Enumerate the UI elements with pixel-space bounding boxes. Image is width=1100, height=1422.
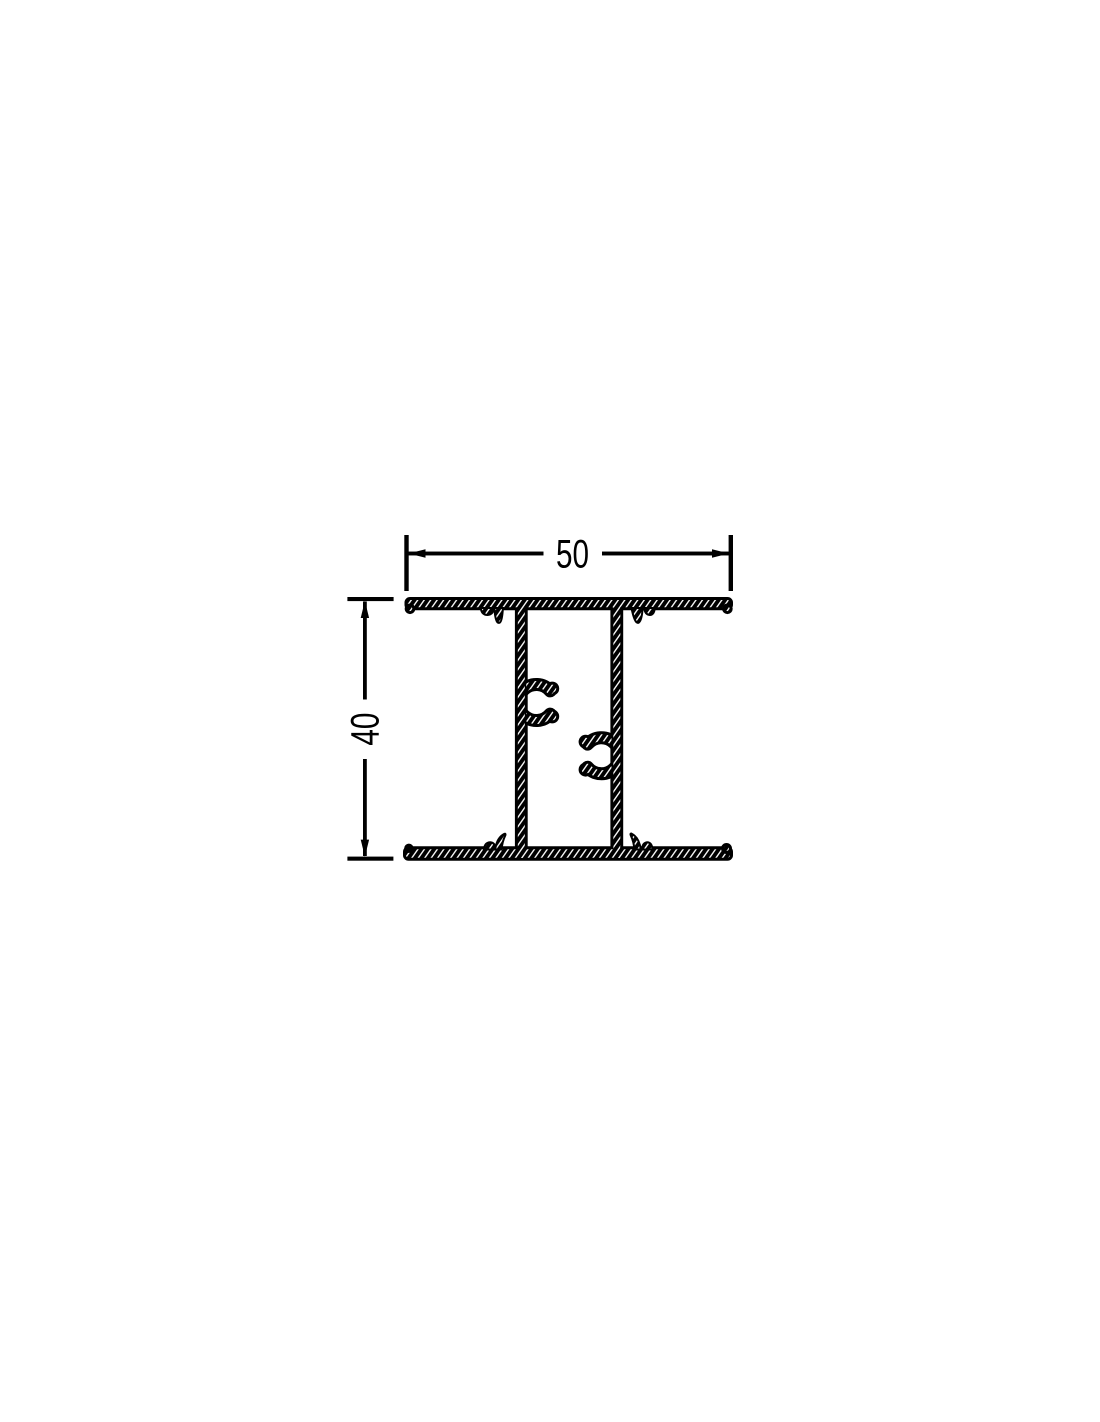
- svg-text:50: 50: [556, 532, 589, 576]
- svg-text:40: 40: [343, 713, 387, 746]
